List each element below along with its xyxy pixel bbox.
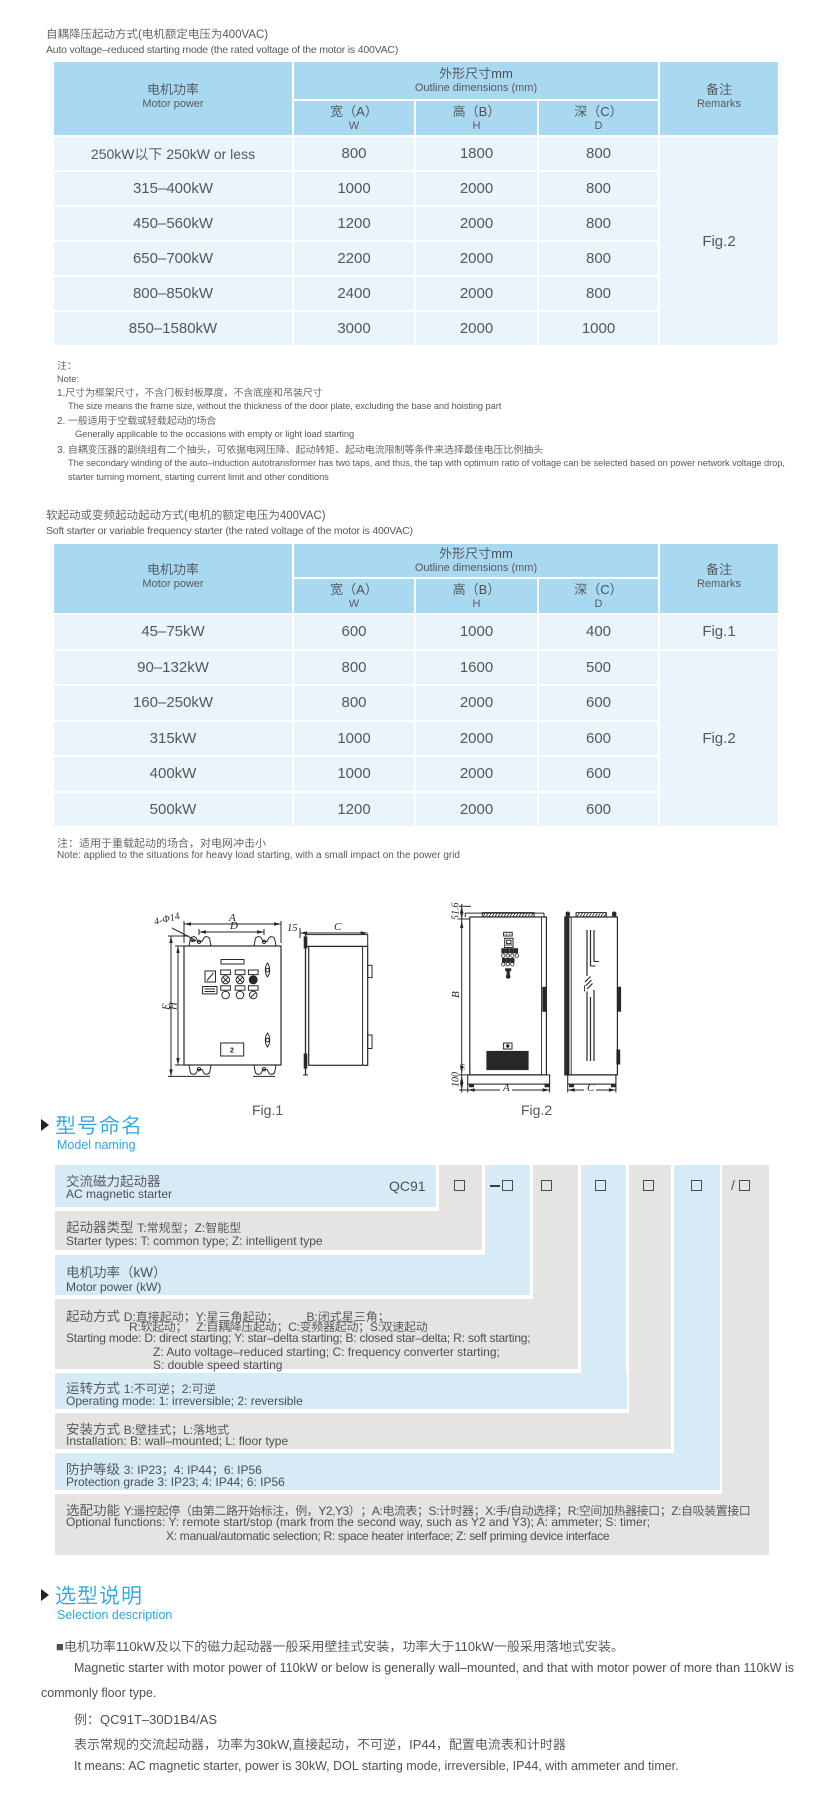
svg-text:A: A [502,1082,510,1094]
svg-text:D: D [229,920,238,932]
svg-text:51.6: 51.6 [451,903,462,921]
svg-text:B: B [450,991,462,998]
svg-text:15: 15 [287,923,298,934]
svg-text:C: C [587,1082,595,1094]
svg-text:C: C [334,921,342,933]
svg-text:2: 2 [230,1048,234,1055]
svg-text:4-Φ14: 4-Φ14 [153,911,181,928]
svg-text:35: 35 [460,1063,467,1071]
svg-text:100: 100 [451,1072,462,1087]
svg-text:H: H [168,1001,180,1011]
